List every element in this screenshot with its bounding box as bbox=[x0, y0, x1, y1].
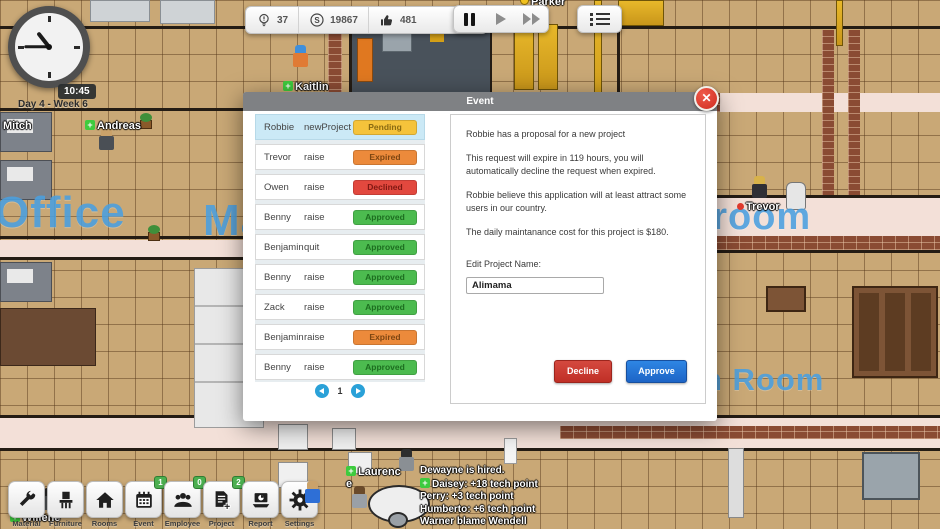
plus-icon bbox=[85, 120, 95, 130]
house-icon bbox=[94, 489, 116, 511]
status-badge: Approved bbox=[353, 300, 417, 315]
elevator-door bbox=[538, 24, 558, 90]
chair-icon bbox=[55, 489, 77, 511]
notification-feed: Dewayne is hired. Daisey: +18 tech point… bbox=[420, 465, 538, 529]
request-name: Owen bbox=[256, 182, 304, 193]
cabinet bbox=[852, 286, 938, 378]
desk bbox=[0, 262, 52, 302]
elevator-door bbox=[618, 0, 664, 26]
laptop-chart-icon bbox=[250, 489, 272, 511]
lightbulb-icon bbox=[256, 12, 272, 28]
desk bbox=[0, 112, 52, 152]
column bbox=[728, 448, 744, 518]
red-dot-icon bbox=[737, 203, 744, 210]
request-type: raise bbox=[304, 302, 353, 313]
nametag-trevor: Trevor bbox=[737, 201, 780, 213]
plus-icon bbox=[283, 81, 293, 91]
edit-project-name-label: Edit Project Name: bbox=[466, 259, 690, 269]
likes-count: 481 bbox=[400, 15, 417, 26]
toolbar-button-furniture[interactable]: Furniture bbox=[47, 481, 84, 528]
machine bbox=[862, 452, 920, 500]
list-menu-icon bbox=[590, 10, 610, 28]
prev-page-button[interactable] bbox=[315, 384, 329, 398]
request-list: Robbie newProject Pending Trevor raise E… bbox=[255, 114, 425, 382]
brick-wall bbox=[822, 30, 834, 198]
request-type: raise bbox=[304, 362, 353, 373]
people-icon bbox=[172, 489, 194, 511]
fast-forward-icon bbox=[523, 13, 541, 25]
svg-text:S: S bbox=[314, 16, 320, 25]
detail-paragraph: Robbie has a proposal for a new project bbox=[466, 128, 690, 141]
clock-center bbox=[46, 44, 52, 50]
cabinet bbox=[766, 286, 806, 312]
nametag-andreas: Andreas bbox=[85, 120, 141, 132]
toolbar-button-report[interactable]: Report bbox=[242, 481, 279, 528]
request-row[interactable]: Benny raise Approved bbox=[255, 264, 425, 290]
request-name: Robbie bbox=[256, 122, 304, 133]
request-row[interactable]: Robbie newProject Pending bbox=[255, 114, 425, 140]
status-badge: Declined bbox=[353, 180, 417, 195]
request-type: raise bbox=[304, 272, 353, 283]
nametag-mitch: Mitch bbox=[3, 120, 32, 132]
plant-icon bbox=[148, 232, 160, 241]
request-type: raise bbox=[304, 332, 353, 343]
money-count: 19867 bbox=[330, 15, 358, 26]
water-cooler bbox=[504, 438, 517, 464]
project-name-input[interactable] bbox=[466, 277, 604, 294]
wall-trim bbox=[836, 0, 843, 46]
time-controls bbox=[453, 5, 549, 33]
nametag-laurence: Laurence bbox=[346, 466, 404, 490]
request-type: newProject bbox=[304, 122, 353, 133]
detail-paragraph: The daily maintanance cost for this proj… bbox=[466, 226, 690, 239]
status-badge: Expired bbox=[353, 330, 417, 345]
status-badge: Approved bbox=[353, 360, 417, 375]
request-type: raise bbox=[304, 152, 353, 163]
toolbar-button-material[interactable]: Material bbox=[8, 481, 45, 528]
machine bbox=[357, 38, 373, 82]
modal-header: Event bbox=[243, 92, 717, 111]
request-name: Trevor bbox=[256, 152, 304, 163]
request-type: quit bbox=[304, 242, 353, 253]
detail-paragraph: This request will expire in 119 hours, y… bbox=[466, 152, 690, 178]
request-type: raise bbox=[304, 182, 353, 193]
decision-buttons: Decline Approve bbox=[554, 360, 687, 383]
status-badge: Approved bbox=[353, 210, 417, 225]
event-modal: Event ✕ Robbie newProject Pending Trevor… bbox=[243, 92, 717, 421]
notification-line: Dewayne is hired. bbox=[420, 465, 538, 478]
clock-tick bbox=[48, 72, 51, 78]
likes-resource: 481 bbox=[368, 7, 427, 33]
shelf bbox=[160, 0, 215, 24]
close-button[interactable]: ✕ bbox=[694, 86, 719, 111]
request-row[interactable]: Zack raise Approved bbox=[255, 294, 425, 320]
request-name: Zack bbox=[256, 302, 304, 313]
room-label-lunchroom: h Room bbox=[703, 362, 824, 398]
toolbar-button-employee[interactable]: 0 Employee bbox=[164, 481, 201, 528]
plant-icon bbox=[140, 120, 152, 129]
notification-line: Humberto: +6 tech point bbox=[420, 504, 538, 517]
wall bbox=[0, 448, 940, 451]
request-name: Benny bbox=[256, 272, 304, 283]
table bbox=[332, 428, 356, 450]
circled-s-icon: S bbox=[309, 12, 325, 28]
brick-wall bbox=[560, 426, 940, 439]
approve-button[interactable]: Approve bbox=[626, 360, 687, 383]
notification-line: Perry: +3 tech point bbox=[420, 491, 538, 504]
pause-button[interactable] bbox=[454, 6, 485, 32]
money-resource: S 19867 bbox=[298, 7, 368, 33]
request-row[interactable]: Benjamin quit Approved bbox=[255, 234, 425, 260]
status-badge: Pending bbox=[353, 120, 417, 135]
request-row[interactable]: Benny raise Approved bbox=[255, 354, 425, 380]
stool bbox=[388, 512, 408, 528]
toolbar-button-rooms[interactable]: Rooms bbox=[86, 481, 123, 528]
shelf bbox=[90, 0, 150, 22]
calendar-icon bbox=[133, 489, 155, 511]
notification-line: Daisey: +18 tech point bbox=[420, 478, 538, 492]
table-group bbox=[0, 308, 96, 366]
toolbar-button-event[interactable]: 1 Event bbox=[125, 481, 162, 528]
request-row[interactable]: Owen raise Declined bbox=[255, 174, 425, 200]
request-row[interactable]: Trevor raise Expired bbox=[255, 144, 425, 170]
request-name: Benny bbox=[256, 362, 304, 373]
close-icon: ✕ bbox=[701, 91, 711, 105]
chevron-left-icon bbox=[319, 388, 324, 394]
clock-tick bbox=[74, 46, 80, 49]
next-page-button[interactable] bbox=[351, 384, 365, 398]
ideas-count: 37 bbox=[277, 15, 288, 26]
day-week-label: Day 4 - Week 6 bbox=[18, 99, 88, 110]
character-trevor[interactable] bbox=[750, 176, 768, 198]
request-name: Benjamin bbox=[256, 332, 304, 343]
status-badge: Approved bbox=[353, 270, 417, 285]
detail-paragraph: Robbie believe this application will at … bbox=[466, 189, 690, 215]
elevator-door bbox=[514, 24, 534, 90]
room-label-office: Office bbox=[0, 188, 126, 238]
clock-tick bbox=[48, 16, 51, 22]
ideas-resource: 37 bbox=[246, 7, 298, 33]
request-row[interactable]: Benjamin raise Expired bbox=[255, 324, 425, 350]
brick-wall bbox=[848, 30, 860, 198]
clock-tick bbox=[18, 46, 24, 49]
character-kaitlin[interactable] bbox=[291, 45, 309, 67]
request-name: Benjamin bbox=[256, 242, 304, 253]
fast-forward-button[interactable] bbox=[517, 6, 548, 32]
toolbar-button-project[interactable]: 2 Project bbox=[203, 481, 240, 528]
pagination: 1 bbox=[255, 384, 425, 398]
request-detail: Robbie has a proposal for a new project … bbox=[450, 114, 706, 404]
plus-icon bbox=[346, 466, 356, 476]
table bbox=[278, 424, 308, 450]
pause-icon bbox=[464, 13, 475, 26]
time-display: 10:45 bbox=[58, 84, 96, 99]
decline-button[interactable]: Decline bbox=[554, 360, 612, 383]
status-badge: Approved bbox=[353, 240, 417, 255]
wrench-icon bbox=[16, 489, 38, 511]
request-name: Benny bbox=[256, 212, 304, 223]
machine bbox=[382, 32, 412, 52]
notification-line: Warner blame Wendell bbox=[420, 516, 538, 529]
thumbs-up-icon bbox=[379, 12, 395, 28]
play-button[interactable] bbox=[485, 6, 516, 32]
resource-bar: 37 S 19867 481 bbox=[245, 6, 488, 34]
chevron-right-icon bbox=[356, 388, 361, 394]
plus-icon bbox=[420, 478, 430, 488]
modal-title: Event bbox=[466, 96, 493, 107]
page-number: 1 bbox=[337, 386, 342, 396]
clock bbox=[8, 6, 90, 88]
request-type: raise bbox=[304, 212, 353, 223]
status-badge: Expired bbox=[353, 150, 417, 165]
request-row[interactable]: Benny raise Approved bbox=[255, 204, 425, 230]
play-icon bbox=[496, 13, 506, 25]
document-plus-icon bbox=[211, 489, 233, 511]
game-screen: Office Ma hroom h Room Mitch Andreas Kai… bbox=[0, 0, 940, 529]
menu-button[interactable] bbox=[577, 5, 622, 33]
wall bbox=[700, 250, 940, 253]
character[interactable] bbox=[303, 481, 321, 503]
